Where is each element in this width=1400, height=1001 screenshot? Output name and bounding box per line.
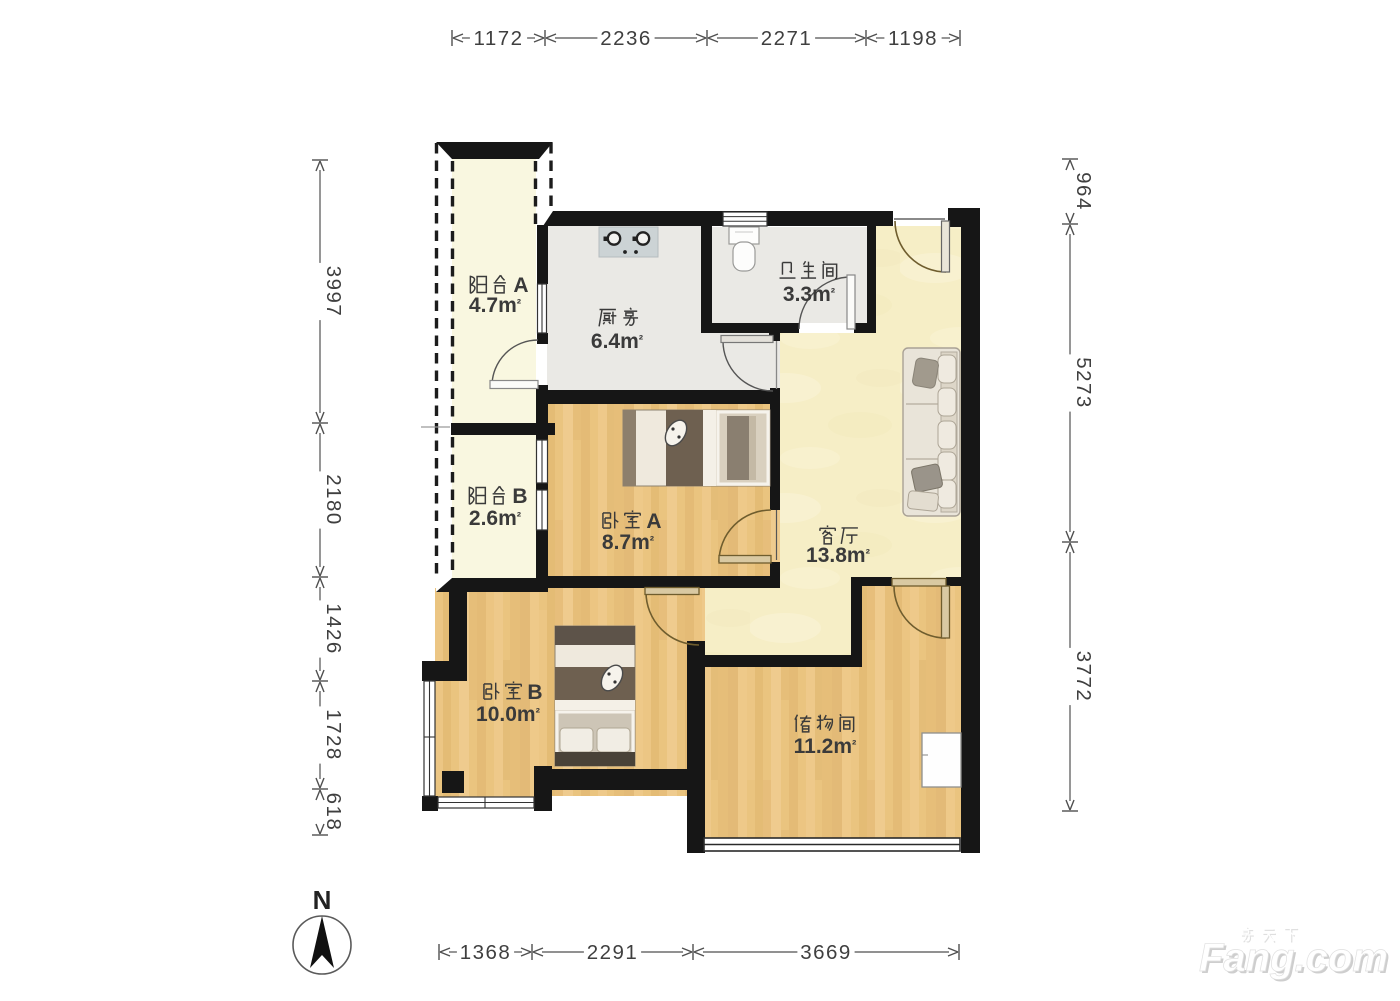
svg-text:4.7m²: 4.7m² xyxy=(469,294,522,317)
svg-text:1172: 1172 xyxy=(473,27,523,50)
svg-text:1728: 1728 xyxy=(322,709,345,761)
svg-text:2271: 2271 xyxy=(761,27,813,50)
svg-text:N: N xyxy=(313,885,332,915)
svg-text:964: 964 xyxy=(1072,172,1095,211)
svg-text:B: B xyxy=(512,485,527,508)
svg-text:3669: 3669 xyxy=(800,941,852,964)
svg-text:1426: 1426 xyxy=(322,603,345,655)
svg-text:1198: 1198 xyxy=(888,27,938,50)
svg-text:13.8m²: 13.8m² xyxy=(806,544,871,567)
svg-text:1368: 1368 xyxy=(460,941,512,964)
svg-text:B: B xyxy=(527,681,542,704)
svg-text:8.7m²: 8.7m² xyxy=(602,531,655,554)
svg-text:2180: 2180 xyxy=(322,474,345,526)
svg-text:11.2m²: 11.2m² xyxy=(794,735,857,758)
svg-text:5273: 5273 xyxy=(1072,357,1095,409)
svg-text:2236: 2236 xyxy=(600,27,652,50)
svg-text:10.0m²: 10.0m² xyxy=(476,703,541,726)
svg-text:A: A xyxy=(646,510,661,533)
svg-text:6.4m²: 6.4m² xyxy=(591,330,644,353)
svg-text:3.3m²: 3.3m² xyxy=(783,283,836,306)
svg-text:3997: 3997 xyxy=(322,266,345,318)
svg-text:2.6m²: 2.6m² xyxy=(469,507,522,530)
svg-text:2291: 2291 xyxy=(587,941,639,964)
svg-text:Fang.com: Fang.com xyxy=(1199,936,1388,980)
svg-text:3772: 3772 xyxy=(1072,651,1095,703)
svg-text:618: 618 xyxy=(322,793,345,832)
